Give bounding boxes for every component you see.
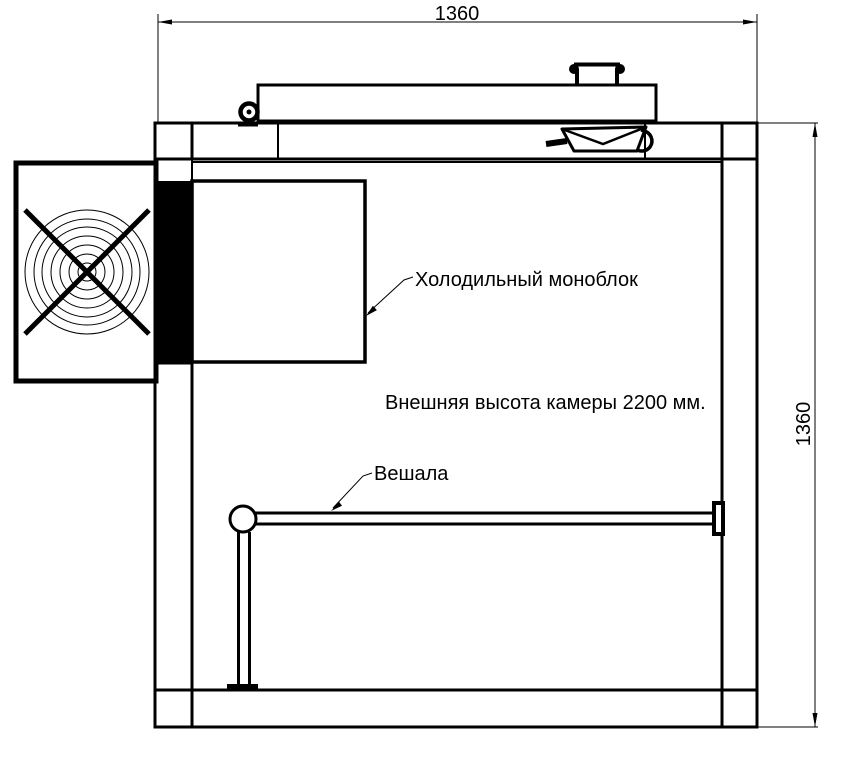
arrowhead-top — [813, 123, 818, 137]
hinge-pin — [247, 110, 252, 115]
refrigeration-chamber-drawing: 1360 1360 — [0, 0, 856, 774]
top-left-corner-post — [155, 123, 192, 159]
hangers-leader-arrow — [331, 502, 342, 511]
top-wall-hatch-right — [645, 123, 722, 159]
monoblock — [155, 181, 365, 363]
monoblock-body — [192, 181, 365, 362]
vent-cap — [569, 64, 625, 86]
drawing-canvas: 1360 1360 — [0, 0, 856, 774]
monoblock-label: Холодильный моноблок — [415, 269, 638, 291]
left-wall-upper — [155, 159, 192, 182]
fan-unit — [16, 163, 156, 381]
height-note: Внешняя высота камеры 2200 мм. — [385, 392, 706, 414]
dimension-value-right: 1360 — [793, 402, 815, 447]
monoblock-leader-line — [368, 277, 413, 313]
panel-hinge — [238, 104, 258, 125]
bottom-right-corner-post — [722, 690, 757, 727]
ceiling-panel-assembly — [238, 64, 656, 151]
monoblock-leader-arrow — [366, 306, 377, 316]
arrowhead-bottom — [813, 713, 818, 727]
right-wall — [722, 159, 757, 690]
ceiling-panel — [258, 85, 656, 121]
lamp-bowl — [562, 127, 646, 151]
monoblock-wall-insert — [155, 182, 193, 363]
top-wall-hatch-left — [192, 123, 278, 159]
dimension-value-top: 1360 — [435, 3, 480, 25]
bottom-left-corner-post — [155, 690, 192, 727]
arrowhead-left — [158, 20, 172, 25]
post-base-plate — [227, 684, 258, 690]
floor-hatch — [192, 690, 722, 727]
rail-wall-mount — [714, 503, 723, 534]
right-dimension: 1360 — [758, 123, 818, 727]
rail-end-cap — [230, 506, 256, 532]
top-right-corner-post — [722, 123, 757, 159]
ceiling-lamp — [546, 127, 652, 151]
top-wall-band — [155, 123, 757, 159]
hangers-label: Вешала — [374, 463, 449, 485]
arrowhead-right — [743, 20, 757, 25]
hanging-rail — [227, 503, 723, 690]
floor-band — [155, 690, 757, 727]
left-wall-lower — [155, 363, 192, 690]
annotations: Холодильный моноблок Внешняя высота каме… — [331, 269, 706, 511]
lamp-arm — [546, 141, 567, 144]
